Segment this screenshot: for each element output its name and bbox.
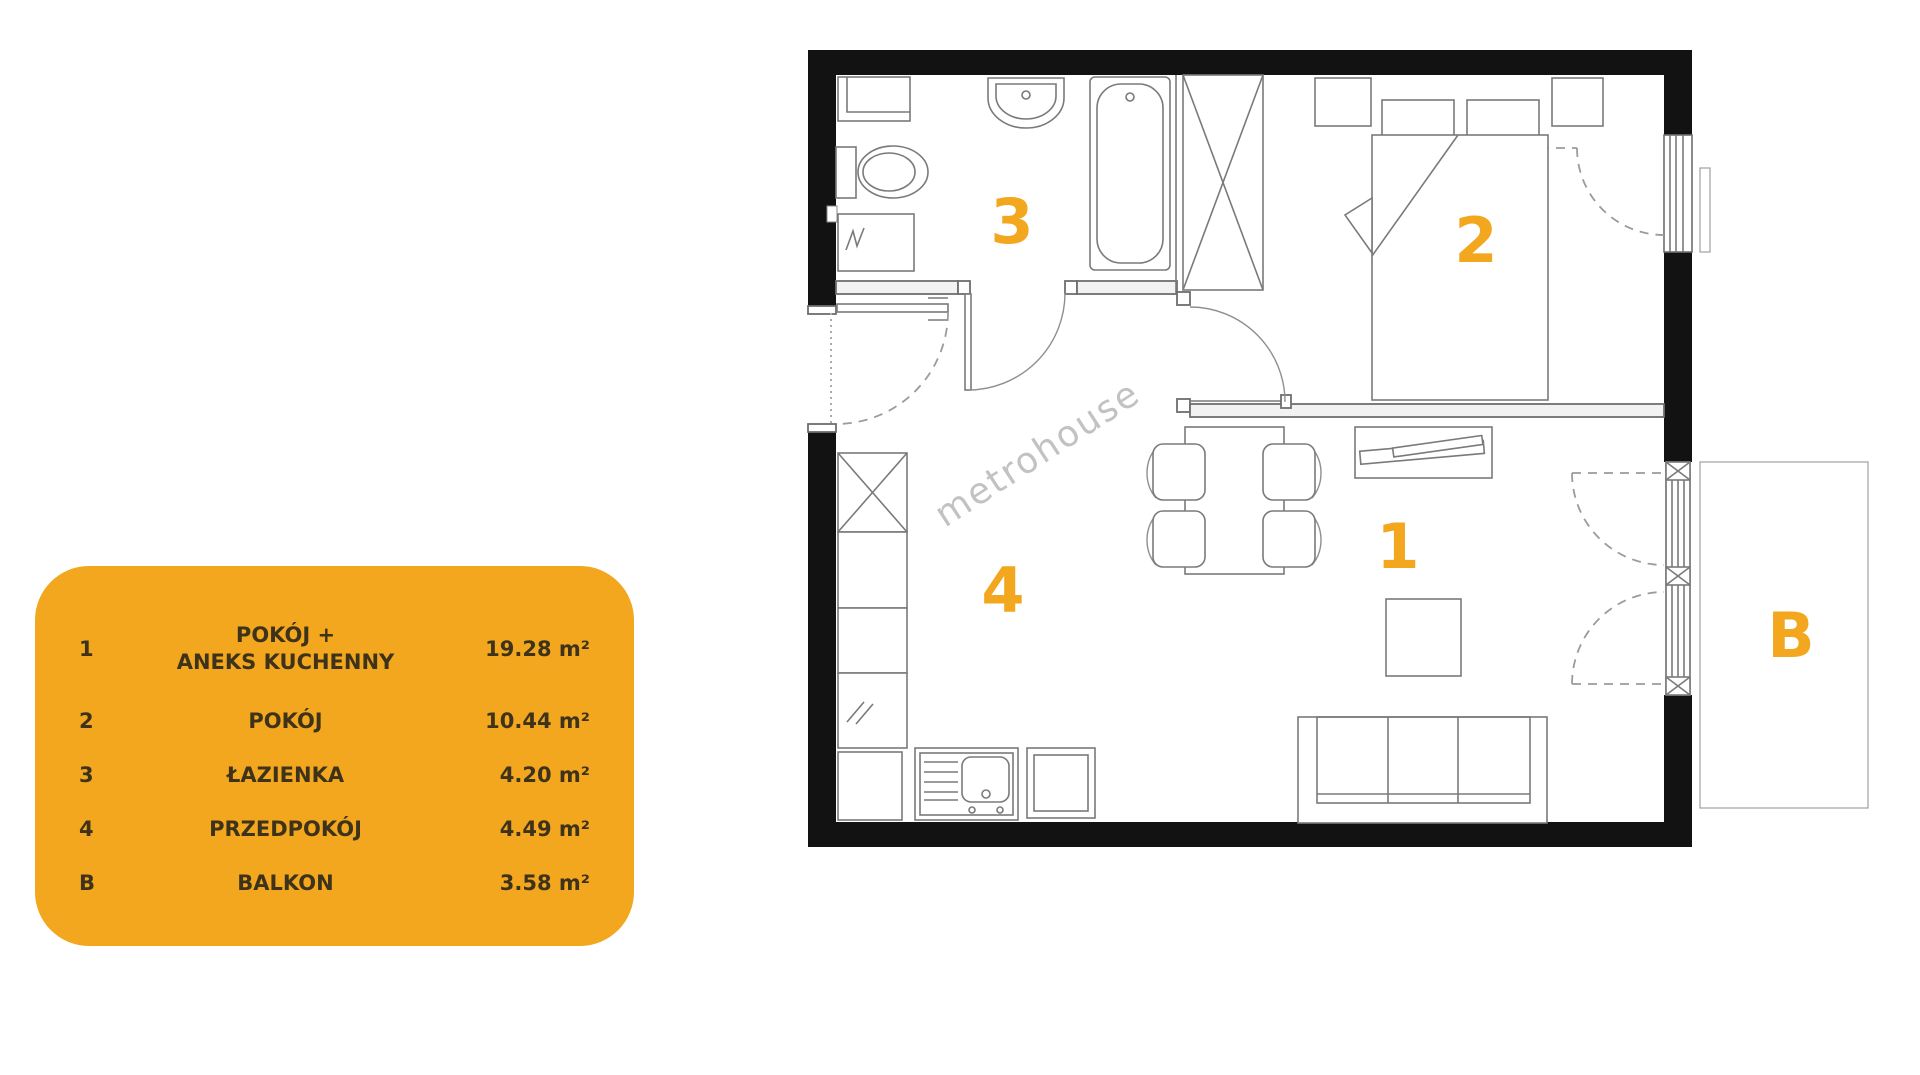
sofa <box>1298 717 1547 823</box>
floor-plan-drawing: metrohouse 3 2 4 1 B <box>0 0 1920 1075</box>
toilet <box>836 146 928 198</box>
kitchen-counter <box>838 748 1095 820</box>
bathroom-cabinet <box>838 77 910 121</box>
tv-cabinet <box>1355 427 1492 478</box>
nightstand-left <box>1315 78 1371 126</box>
coffee-table <box>1386 599 1461 676</box>
bathroom-door <box>965 293 1065 390</box>
room-label-3: 3 <box>990 185 1033 258</box>
room-label-1: 1 <box>1376 510 1419 583</box>
sink <box>988 78 1064 128</box>
watermark-text: metrohouse <box>928 373 1148 536</box>
room-label-4: 4 <box>981 554 1024 627</box>
floor-plan-page: 1 POKÓJ + ANEKS KUCHENNY 19.28 m² 2 POKÓ… <box>0 0 1920 1075</box>
nightstand-right <box>1552 78 1603 126</box>
bathtub <box>1090 77 1170 270</box>
bedroom-window <box>1540 135 1710 252</box>
bedroom-door <box>1190 307 1291 408</box>
bed <box>1345 100 1548 400</box>
kitchen-tall-cabinets <box>838 453 907 748</box>
washing-machine <box>838 214 914 271</box>
balcony-door <box>1572 462 1690 695</box>
room-label-2: 2 <box>1454 204 1497 277</box>
shaft <box>1183 75 1263 290</box>
room-label-B: B <box>1767 599 1814 672</box>
entrance-door <box>831 298 948 425</box>
